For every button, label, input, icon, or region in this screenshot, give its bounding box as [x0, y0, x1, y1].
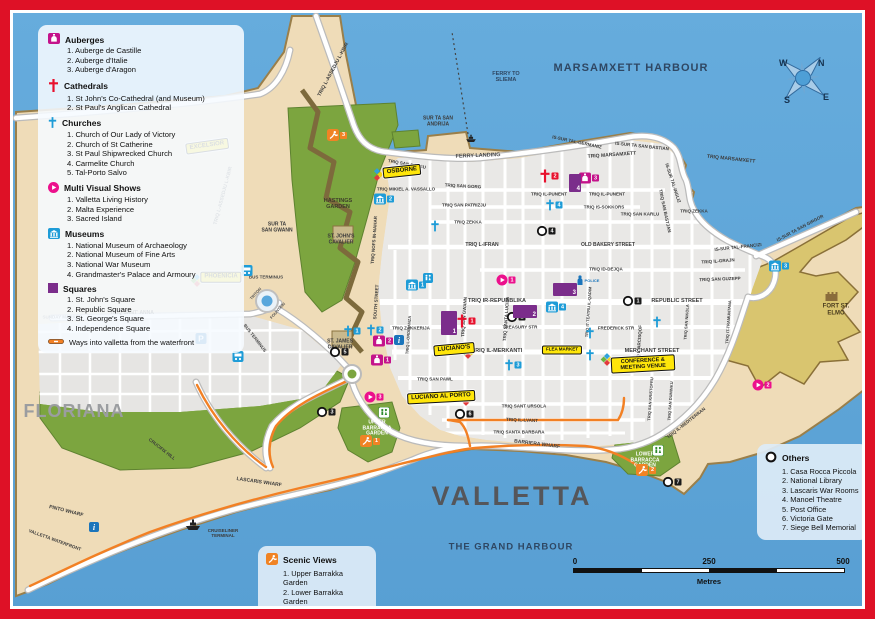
- legend-item: 1. St John's Co-Cathedral (and Museum): [67, 94, 236, 104]
- auberge-marker-3: 3: [579, 173, 599, 184]
- marker-number-badge: 1: [373, 438, 380, 445]
- scenic-view-icon: [266, 553, 278, 567]
- other-icon: [663, 477, 674, 488]
- legend-item: 3. Sacred Island: [67, 214, 236, 224]
- legend-scenic-title: Scenic Views: [283, 555, 337, 565]
- marker-number-badge: 1: [354, 328, 361, 335]
- legend-item: 3. St. George's Square: [67, 314, 236, 324]
- ways-note-text: Ways into valletta from the waterfront: [69, 338, 194, 347]
- scale-bar-segments: [573, 568, 845, 573]
- street-label: TRIQ IS-SOKKORS: [584, 204, 625, 209]
- show-icon: [753, 380, 764, 391]
- castle-icon: [824, 288, 838, 306]
- map-frame: N E S W MARSAMXETT HARBOURTHE GRAND HARB…: [0, 0, 875, 619]
- street-label: TRIQ IL-PUNENT: [589, 191, 625, 196]
- marker-number-badge: 1: [384, 357, 391, 364]
- map-canvas: N E S W MARSAMXETT HARBOURTHE GRAND HARB…: [10, 10, 865, 609]
- church-icon: [586, 328, 595, 339]
- legend-item: 6. Victoria Gate: [782, 514, 861, 523]
- legend-ways-row: Ways into valletta from the waterfront: [48, 338, 236, 347]
- compass-s: S: [784, 95, 790, 105]
- ship-icon: [185, 518, 201, 536]
- street-label: TRIQ SANT URSOLA: [502, 403, 547, 408]
- legend-item: 2. Church of St Catherine: [67, 140, 236, 150]
- street-label: POLICE: [585, 279, 600, 283]
- other-icon: [317, 407, 328, 418]
- marker-number-badge: 6: [467, 411, 474, 418]
- church-icon: [505, 360, 514, 371]
- legend-item: 1. Upper Barrakka Garden: [283, 569, 368, 588]
- ways-route-icon: [48, 338, 64, 347]
- marker-number-badge: 5: [342, 349, 349, 356]
- church-cross-icon: [48, 117, 57, 130]
- scenic-marker-2: 2: [636, 464, 656, 476]
- city-gate-roundabout: [343, 365, 361, 383]
- scale-unit: Metres: [697, 577, 721, 586]
- marker-number-badge: 1: [469, 318, 476, 325]
- street-label: SUR TA SAN ANDRIJA: [423, 116, 453, 127]
- church-marker: [431, 221, 440, 232]
- marker-number-badge: 2: [377, 327, 384, 334]
- marker-number-badge: 3: [329, 409, 336, 416]
- square-icon: [48, 283, 58, 295]
- legend-scenic-items: 1. Upper Barrakka Garden2. Lower Barrakk…: [283, 569, 368, 609]
- legend-item: 3. St Paul Shipwrecked Church: [67, 149, 236, 159]
- scenic-icon: [360, 435, 372, 447]
- other-marker-1: 1: [623, 296, 642, 307]
- legend-scenic-header: Scenic Views: [266, 553, 368, 567]
- street-label: TRIQ IL-PUNENT: [531, 191, 567, 196]
- legend-sections: Auberges1. Auberge de Castille2. Auberge…: [48, 33, 236, 333]
- marker-number-badge: 2: [649, 467, 656, 474]
- scenic-icon: [327, 129, 339, 141]
- museum-icon: [48, 228, 60, 241]
- museum-icon: [406, 280, 418, 291]
- wc-blue-icon: [423, 270, 433, 288]
- church-icon: [653, 317, 662, 328]
- marker-number-badge: 2: [765, 382, 772, 389]
- museum-icon: [546, 302, 558, 313]
- church-marker: [653, 317, 662, 328]
- legend-others-header: Others: [765, 451, 861, 465]
- square-marker-3: 3: [553, 283, 577, 296]
- compass-e: E: [823, 92, 829, 102]
- street-label: TRIQ SAN PAWL: [417, 376, 452, 381]
- legend-others-title: Others: [782, 453, 809, 463]
- square-number: 1: [453, 329, 456, 335]
- auberge-icon: [373, 336, 385, 347]
- legend-item: 1. Casa Rocca Piccola: [782, 467, 861, 476]
- marker-number-badge: 4: [549, 228, 556, 235]
- legend-item: 2. Republic Square: [67, 305, 236, 315]
- legend-item: 5. Tal-Porto Salvo: [67, 168, 236, 178]
- legend-item: 7. Siege Bell Memorial: [782, 523, 861, 532]
- street-label: TRIQ L-IFRAN: [465, 243, 498, 249]
- marker-number-badge: 7: [675, 479, 682, 486]
- marker-number-badge: 3: [377, 394, 384, 401]
- auberge-marker-2: 2: [373, 336, 393, 347]
- other-marker-3: 3: [317, 407, 336, 418]
- compass-n: N: [818, 58, 825, 68]
- legend-item: 5. Post Office: [782, 505, 861, 514]
- square-marker-2: 2: [513, 305, 537, 318]
- street-label: SUR TA SAN GWANN: [261, 222, 292, 233]
- street-label: TRIQ ZEKKA: [454, 219, 482, 224]
- church-marker: [586, 328, 595, 339]
- street-label: HASTINGS GARDEN: [324, 198, 352, 210]
- other-marker-4: 4: [537, 226, 556, 237]
- square-number: 2: [533, 312, 536, 318]
- legend-item: 1. St. John's Square: [67, 295, 236, 305]
- legend-item: 3. Hastings Garden: [283, 607, 368, 609]
- legend-item: 1. Church of Our Lady of Victory: [67, 130, 236, 140]
- legend-section-title: Churches: [62, 118, 101, 128]
- street-label: OLD BAKERY STREET: [581, 243, 635, 249]
- church-icon: [586, 350, 595, 361]
- marker-number-badge: 3: [340, 132, 347, 139]
- legend-item: 3. Lascaris War Rooms: [782, 486, 861, 495]
- legend-item: 3. Auberge d'Aragon: [67, 65, 236, 75]
- street-label: TRIQ SANTA BARBARA: [494, 429, 545, 434]
- church-icon: [546, 200, 555, 211]
- street-label: ST. JOHN'S CAVALIER: [327, 234, 354, 245]
- street-label: MERCHANT STREET: [625, 348, 680, 354]
- church-icon: [431, 221, 440, 232]
- square-number: 3: [573, 290, 576, 296]
- marker-number-badge: 4: [556, 202, 563, 209]
- church-icon: [344, 326, 353, 337]
- church-marker-1: 1: [344, 326, 361, 337]
- scale-bar: 0 250 500 Metres: [573, 557, 845, 591]
- street-label: TRIQ IL-MERKANTI: [472, 348, 522, 354]
- hotel-icon: [371, 168, 384, 186]
- marker-number-badge: 1: [509, 277, 516, 284]
- street-label: TRIQ ZEKKA: [680, 208, 708, 213]
- ferry-boat-icon: [466, 130, 477, 148]
- show-icon: [497, 275, 508, 286]
- museum-icon: [769, 261, 781, 272]
- marker-number-badge: 4: [559, 304, 566, 311]
- square-number: 4: [577, 186, 580, 192]
- map-stage: N E S W MARSAMXETT HARBOURTHE GRAND HARB…: [10, 10, 865, 609]
- museum-icon: [374, 194, 386, 205]
- legend-item: 2. St Paul's Anglican Cathedral: [67, 103, 236, 113]
- legend-item: 2. Malta Experience: [67, 205, 236, 215]
- legend-item: 1. Valletta Living History: [67, 195, 236, 205]
- church-marker-3: 3: [505, 360, 522, 371]
- street-label: BUS TERMINUS: [249, 274, 283, 279]
- other-marker-7: 7: [663, 477, 682, 488]
- legend-section-title: Multi Visual Shows: [64, 183, 141, 193]
- legend-item: 4. Independence Square: [67, 324, 236, 334]
- auberge-icon: [371, 355, 383, 366]
- street-label: FLORIANA: [24, 401, 125, 421]
- legend-section-auberge: Auberges1. Auberge de Castille2. Auberge…: [48, 33, 236, 75]
- museum-marker-3: 3: [769, 261, 789, 272]
- cathedral-cross-icon: [48, 79, 59, 94]
- legend-item: 2. Lower Barrakka Garden: [283, 588, 368, 607]
- legend-section-church: Churches1. Church of Our Lady of Victory…: [48, 117, 236, 178]
- church-marker-4: 4: [546, 200, 563, 211]
- street-label: TRIQ SAN PATRIZJU: [442, 202, 486, 207]
- marker-number-badge: 3: [782, 263, 789, 270]
- wc-green-icon: [379, 405, 390, 423]
- legend-item: 4. Grandmaster's Palace and Armoury: [67, 270, 236, 280]
- legend-item: 1. Auberge de Castille: [67, 46, 236, 56]
- church-marker-2: 2: [367, 325, 384, 336]
- show-icon: [365, 392, 376, 403]
- square-marker-1: 1: [441, 311, 457, 335]
- street-label: TRIQ MIKIEL A. VASSALLO: [377, 186, 435, 191]
- others-circle-icon: [765, 451, 777, 465]
- other-icon: [537, 226, 548, 237]
- legend-section-museum: Museums1. National Museum of Archaeology…: [48, 228, 236, 279]
- marker-number-badge: 2: [386, 338, 393, 345]
- cathedral-icon: [540, 170, 551, 183]
- compass-w: W: [779, 58, 788, 68]
- auberge-icon: [48, 33, 60, 46]
- street-label: REPUBLIC STREET: [651, 298, 702, 304]
- cathedral-marker-2: 2: [540, 170, 559, 183]
- play-icon: [48, 182, 59, 195]
- legend-item: 1. National Museum of Archaeology: [67, 241, 236, 251]
- legend-item: 2. National Library: [782, 476, 861, 485]
- scale-tick-250: 250: [702, 557, 715, 566]
- legend-item: 2. Auberge d'Italie: [67, 56, 236, 66]
- street-label: VALLETTA: [432, 481, 593, 511]
- marker-number-badge: 3: [515, 362, 522, 369]
- church-marker: [586, 350, 595, 361]
- show-marker-2: 2: [753, 380, 772, 391]
- street-label: MARSAMXETT HARBOUR: [554, 62, 709, 74]
- legend-item: 2. National Museum of Fine Arts: [67, 250, 236, 260]
- marker-number-badge: 2: [387, 196, 394, 203]
- scenic-icon: [636, 464, 648, 476]
- wc-green-icon: [653, 443, 664, 461]
- legend-section-show: Multi Visual Shows1. Valletta Living His…: [48, 182, 236, 224]
- scale-tick-0: 0: [573, 557, 577, 566]
- legend-panel-scenic: Scenic Views 1. Upper Barrakka Garden2. …: [258, 546, 376, 609]
- cathedral-marker-1: 1: [457, 315, 476, 328]
- legend-section-title: Museums: [65, 229, 104, 239]
- legend-item: 4. Manoel Theatre: [782, 495, 861, 504]
- museum-marker-2: 2: [374, 194, 394, 205]
- street-label: THE GRAND HARBOUR: [449, 543, 574, 554]
- legend-others-items: 1. Casa Rocca Piccola2. National Library…: [782, 467, 861, 533]
- other-icon: [330, 347, 341, 358]
- legend-item: 4. Carmelite Church: [67, 159, 236, 169]
- legend-section-title: Cathedrals: [64, 81, 108, 91]
- marker-number-badge: 3: [592, 175, 599, 182]
- info-icon: i: [89, 519, 99, 537]
- yellow-place-label: FLEA MARKET: [542, 346, 582, 355]
- show-marker-3: 3: [365, 392, 384, 403]
- legend-panel-main: Auberges1. Auberge de Castille2. Auberge…: [38, 25, 244, 353]
- street-label: FERRY TO SLIEMA: [492, 71, 519, 83]
- legend-item: 3. National War Museum: [67, 260, 236, 270]
- scenic-marker-1: 1: [360, 435, 380, 447]
- show-marker-1: 1: [497, 275, 516, 286]
- other-icon: [623, 296, 634, 307]
- street-label: FREDERICK STR: [598, 325, 635, 330]
- street-label: CRUISELINER TERMINAL: [208, 528, 239, 538]
- street-label: TRIQ IR-REPUBBLIKA: [468, 298, 526, 304]
- square-marker-4: 4: [569, 174, 581, 192]
- legend-section-title: Squares: [63, 284, 97, 294]
- info-icon: i: [394, 332, 404, 350]
- museum-marker-4: 4: [546, 302, 566, 313]
- legend-section-cathedral: Cathedrals1. St John's Co-Cathedral (and…: [48, 79, 236, 113]
- legend-panel-others: Others 1. Casa Rocca Piccola2. National …: [757, 444, 865, 540]
- scale-tick-500: 500: [836, 557, 849, 566]
- police-icon: [576, 272, 584, 290]
- marker-number-badge: 1: [635, 298, 642, 305]
- scenic-marker-3: 3: [327, 129, 347, 141]
- auberge-marker-1: 1: [371, 355, 391, 366]
- legend-section-title: Auberges: [65, 35, 104, 45]
- street-label: TRIQ ID-DEJQA: [589, 266, 623, 271]
- church-icon: [367, 325, 376, 336]
- cathedral-icon: [457, 315, 468, 328]
- street-label: TRIQ SAN KARLU: [621, 211, 660, 216]
- legend-section-square: Squares1. St. John's Square2. Republic S…: [48, 283, 236, 333]
- marker-number-badge: 2: [552, 173, 559, 180]
- street-label: TRIQ IL-LVANT: [506, 417, 538, 423]
- other-marker-5: 5: [330, 347, 349, 358]
